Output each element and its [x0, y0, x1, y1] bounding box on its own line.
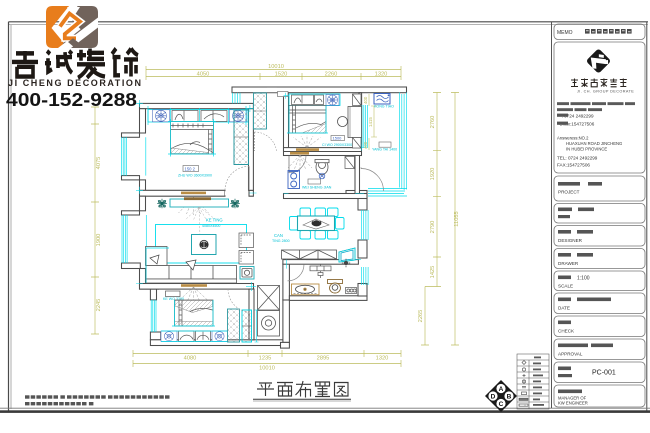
svg-text:APPROVAL: APPROVAL — [558, 352, 583, 357]
svg-text:HUAXUAN ROAD JINCHENG: HUAXUAN ROAD JINCHENG — [566, 141, 622, 146]
svg-text:4050: 4050 — [197, 72, 210, 78]
svg-text:10010: 10010 — [259, 366, 275, 372]
svg-text:KE TING: KE TING — [206, 218, 223, 223]
svg-text:FAX:154727506: FAX:154727506 — [557, 163, 590, 168]
svg-text:1235: 1235 — [259, 356, 272, 362]
svg-text:B: B — [507, 394, 512, 401]
svg-text:4080: 4080 — [184, 356, 197, 362]
svg-text:2760: 2760 — [430, 116, 436, 129]
svg-text:4080X4500: 4080X4500 — [202, 224, 220, 228]
svg-text:2245: 2245 — [96, 299, 102, 312]
svg-text:Answeress:NO.2: Answeress:NO.2 — [557, 136, 589, 141]
svg-text:2260: 2260 — [325, 72, 338, 78]
svg-text:1320: 1320 — [376, 356, 389, 362]
svg-text:IN HUBEI PROVINCE: IN HUBEI PROVINCE — [566, 147, 607, 152]
svg-text:1920: 1920 — [430, 168, 436, 181]
svg-text:MEMO: MEMO — [557, 30, 573, 36]
svg-text:1520: 1520 — [275, 72, 288, 78]
svg-text:JI. CH. GROUP DECORATE: JI. CH. GROUP DECORATE — [577, 90, 634, 94]
svg-text:CAN: CAN — [274, 233, 283, 238]
svg-text:C: C — [499, 401, 504, 408]
svg-text:1500: 1500 — [333, 136, 343, 141]
svg-text:KONG TIAO: KONG TIAO — [374, 105, 394, 109]
svg-text:1415: 1415 — [368, 117, 373, 127]
svg-text:2895: 2895 — [317, 356, 330, 362]
svg-text:2790: 2790 — [430, 221, 436, 234]
svg-text:1900: 1900 — [96, 234, 102, 247]
svg-text:WEI SHENG JIAN: WEI SHENG JIAN — [302, 186, 332, 190]
svg-text:1:100: 1:100 — [577, 276, 590, 282]
svg-text:PROJECT: PROJECT — [558, 190, 580, 195]
svg-text:11055: 11055 — [454, 211, 460, 226]
svg-text:10010: 10010 — [268, 64, 284, 70]
svg-text:CHECK: CHECK — [558, 329, 575, 334]
svg-text:TING 2800: TING 2800 — [272, 239, 290, 243]
svg-text:D: D — [491, 394, 496, 401]
svg-text:PC-001: PC-001 — [592, 370, 616, 377]
svg-text:4075: 4075 — [96, 157, 102, 170]
svg-text:1425: 1425 — [430, 266, 436, 279]
svg-text:TEL: 0724 2492299: TEL: 0724 2492299 — [557, 156, 598, 161]
svg-text:DRAWER: DRAWER — [558, 261, 579, 266]
svg-text:150 2: 150 2 — [185, 166, 196, 171]
svg-text:JI CHENG DECORATION: JI CHENG DECORATION — [8, 78, 141, 88]
svg-text:YANG TAI 1400: YANG TAI 1400 — [372, 148, 397, 152]
svg-text:1320: 1320 — [375, 72, 388, 78]
svg-text:CI WO 2900X3300: CI WO 2900X3300 — [322, 143, 352, 147]
svg-text:400: 400 — [363, 141, 368, 149]
svg-text:ZHU WO 3600X3900: ZHU WO 3600X3900 — [178, 174, 212, 178]
svg-text:KW ENGINEER: KW ENGINEER — [558, 401, 588, 406]
svg-text:400: 400 — [363, 96, 368, 104]
svg-text:2265: 2265 — [418, 310, 424, 323]
svg-text:A: A — [499, 386, 504, 393]
svg-text:400-152-9288: 400-152-9288 — [6, 89, 137, 110]
svg-text:DESIGNER: DESIGNER — [558, 238, 583, 243]
svg-text:DATE: DATE — [558, 306, 570, 311]
svg-text:SCALE: SCALE — [558, 284, 573, 289]
